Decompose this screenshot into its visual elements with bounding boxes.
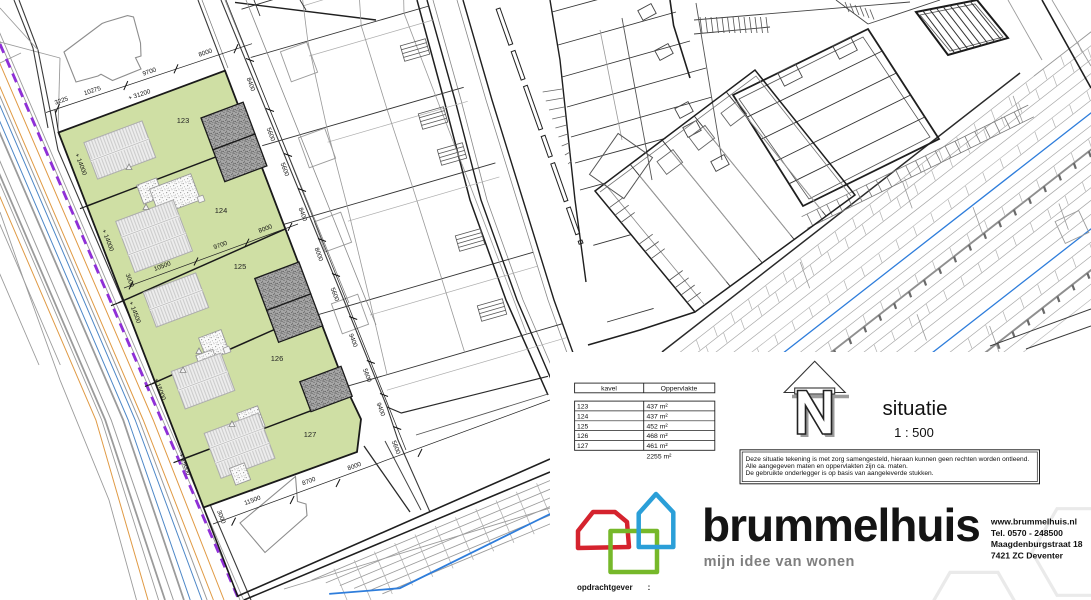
svg-text:De gebruikte onderlegger is op: De gebruikte onderlegger is op basis van… [746,470,934,477]
svg-text:126: 126 [271,354,284,363]
svg-text:452 m²: 452 m² [647,423,669,430]
svg-text:124: 124 [215,206,228,215]
svg-text:124: 124 [577,414,589,421]
svg-text:opdrachtgever: opdrachtgever [577,583,633,592]
svg-text::: : [648,583,651,592]
svg-text:127: 127 [304,430,317,439]
svg-text:127: 127 [577,443,589,450]
svg-text:126: 126 [577,433,589,440]
svg-text:brummelhuis: brummelhuis [702,499,980,551]
svg-text:1 : 500: 1 : 500 [894,425,934,440]
svg-text:2255 m²: 2255 m² [647,454,673,461]
svg-text:Deze situatie tekening is met: Deze situatie tekening is met zorg samen… [746,456,1030,463]
svg-text:kavel: kavel [601,386,617,393]
svg-text:Oppervlakte: Oppervlakte [661,386,698,393]
svg-text:7421 ZC Deventer: 7421 ZC Deventer [991,550,1064,560]
svg-text:Tel. 0570 - 248500: Tel. 0570 - 248500 [991,528,1063,538]
svg-text:125: 125 [577,423,589,430]
svg-text:www.brummelhuis.nl: www.brummelhuis.nl [990,517,1077,527]
svg-text:Maagdenburgstraat 18: Maagdenburgstraat 18 [991,539,1083,549]
svg-text:125: 125 [234,262,247,271]
svg-text:461 m²: 461 m² [647,443,669,450]
svg-text:468 m²: 468 m² [647,433,669,440]
svg-text:Alle aangegeven maten en opper: Alle aangegeven maten en oppervlakten zi… [746,463,909,470]
svg-text:123: 123 [577,404,589,411]
svg-text:437 m²: 437 m² [647,414,669,421]
svg-text:437 m²: 437 m² [647,404,669,411]
svg-text:mijn idee van wonen: mijn idee van wonen [704,554,855,570]
svg-text:123: 123 [177,116,190,125]
svg-text:situatie: situatie [883,397,948,420]
